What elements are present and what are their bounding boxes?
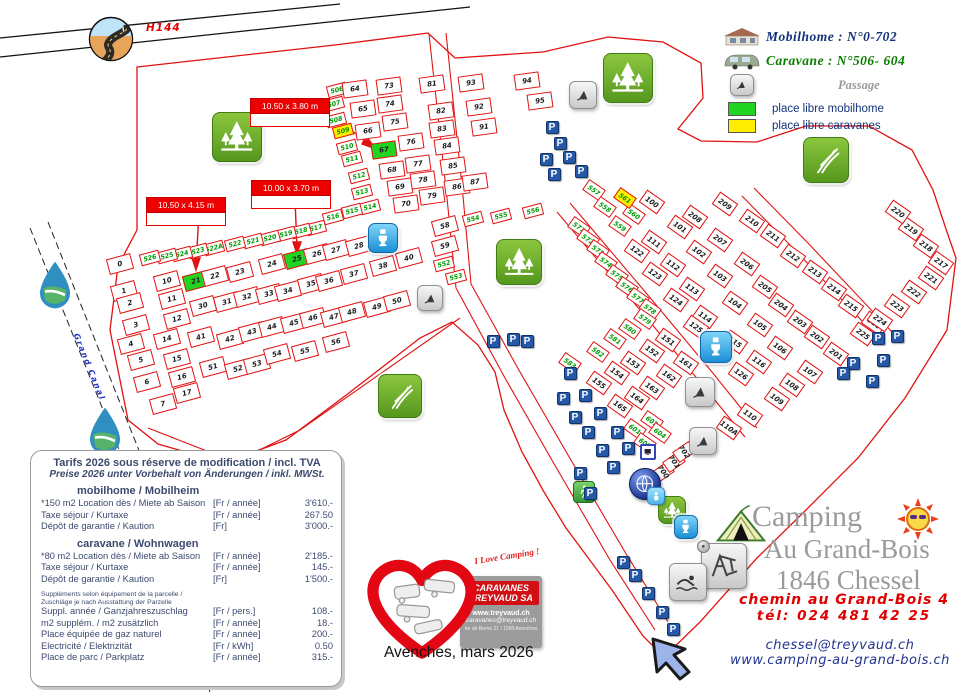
legend-mobilhome-label: Mobilhome : N°0-702 bbox=[766, 29, 897, 45]
parking-icon: P bbox=[521, 335, 534, 348]
tariff-section-header: mobilhome / Mobilheim bbox=[77, 485, 333, 497]
toilet-icon bbox=[674, 515, 698, 539]
tariff-row: Taxe séjour / Kurtaxe[Fr / année]145.- bbox=[41, 562, 333, 574]
h144-road-icon bbox=[88, 16, 134, 67]
forest-icon bbox=[496, 239, 542, 285]
dimension-label-1: 10.50 x 3.80 m bbox=[250, 98, 330, 127]
tariff-row: m2 supplém. / m2 zusätzlich[Fr / année]1… bbox=[41, 618, 333, 630]
site-title-line2: Au Grand-Bois bbox=[764, 534, 930, 565]
h144-label: H144 bbox=[146, 22, 181, 34]
parking-icon: P bbox=[594, 407, 607, 420]
parking-icon: P bbox=[575, 165, 588, 178]
dimension-label-2: 10.00 x 3.70 m bbox=[251, 180, 331, 209]
parking-icon: P bbox=[487, 335, 500, 348]
parking-icon: P bbox=[540, 153, 553, 166]
parking-icon: P bbox=[642, 587, 655, 600]
parking-icon: P bbox=[891, 330, 904, 343]
contact-address-block: chemin au Grand-Bois 4 tél: 024 481 42 2… bbox=[730, 592, 958, 624]
website-url: www.camping-au-grand-bois.ch bbox=[718, 653, 962, 668]
forest-icon bbox=[603, 53, 653, 103]
tariff-row: Dépôt de garantie / Kaution[Fr]1'500.- bbox=[41, 574, 333, 586]
wheat-field-icon bbox=[378, 374, 422, 418]
passage-icon bbox=[685, 377, 715, 407]
passage-icon bbox=[417, 285, 443, 311]
parking-icon: P bbox=[582, 426, 595, 439]
water-drop-icon bbox=[35, 260, 75, 310]
parking-icon: P bbox=[574, 467, 587, 480]
tariff-row: Electricité / Elektrizität[Fr / kWh]0.50 bbox=[41, 641, 333, 653]
parking-icon: P bbox=[629, 569, 642, 582]
date-note: Avenches, mars 2026 bbox=[384, 644, 534, 662]
parking-icon: P bbox=[622, 442, 635, 455]
campground-map-page: 0123456710111214151617212223242526272830… bbox=[0, 0, 962, 700]
legend-caravane-label: Caravane : N°506- 604 bbox=[766, 53, 905, 69]
wheat-field-icon bbox=[803, 137, 849, 183]
tariff-note: Zuschläge je nach Ausstattung der Parzel… bbox=[41, 599, 333, 607]
free-caravane-swatch bbox=[728, 119, 756, 133]
parking-icon: P bbox=[548, 168, 561, 181]
phone-number: tél: 024 481 42 25 bbox=[730, 608, 958, 624]
parking-icon: P bbox=[554, 137, 567, 150]
parking-icon: P bbox=[584, 487, 597, 500]
tariff-row: Taxe séjour / Kurtaxe[Fr / année]267.50 bbox=[41, 510, 333, 522]
parking-icon: P bbox=[877, 354, 890, 367]
tariff-row: *150 m2 Location dès / Miete ab Saison[F… bbox=[41, 498, 333, 510]
parking-icon: P bbox=[596, 444, 609, 457]
parking-icon: P bbox=[617, 556, 630, 569]
passage-icon bbox=[718, 74, 766, 96]
parking-icon: P bbox=[579, 389, 592, 402]
shower-icon bbox=[647, 487, 665, 505]
caravane-image bbox=[718, 51, 766, 71]
tariffs-table: mobilhome / Mobilheim*150 m2 Location dè… bbox=[41, 485, 333, 664]
swimming-icon bbox=[669, 563, 707, 601]
passage-icon bbox=[689, 427, 717, 455]
parking-icon: P bbox=[837, 367, 850, 380]
free-mobilhome-swatch bbox=[728, 102, 756, 116]
tariff-section-header: caravane / Wohnwagen bbox=[77, 538, 333, 550]
toilet-icon bbox=[368, 223, 398, 253]
parking-icon: P bbox=[656, 606, 669, 619]
mobilhome-image bbox=[718, 26, 766, 48]
round-service-icon bbox=[697, 540, 710, 553]
parking-icon: P bbox=[507, 333, 520, 346]
parking-icon: P bbox=[546, 121, 559, 134]
contact-web-block: chessel@treyvaud.ch www.camping-au-grand… bbox=[718, 638, 962, 668]
street-address: chemin au Grand-Bois 4 bbox=[730, 592, 958, 608]
passage-icon bbox=[569, 81, 597, 109]
legend-free-mobilhome-label: place libre mobilhome bbox=[772, 103, 884, 115]
legend-passage-label: Passage bbox=[838, 78, 880, 93]
tariffs-subtitle: Preise 2026 unter Vorbehalt von Änderung… bbox=[41, 469, 333, 480]
tariff-note: Suppléments selon équipement de la parce… bbox=[41, 591, 333, 599]
tv-icon bbox=[640, 444, 656, 460]
email-address: chessel@treyvaud.ch bbox=[718, 638, 962, 653]
tariffs-title: Tarifs 2026 sous réserve de modification… bbox=[41, 457, 333, 469]
site-title-line1: Camping bbox=[752, 500, 930, 534]
tariff-row: *80 m2 Location dès / Miete ab Saison[Fr… bbox=[41, 551, 333, 563]
parking-icon: P bbox=[569, 411, 582, 424]
site-title: Camping Au Grand-Bois 1846 Chessel bbox=[752, 500, 930, 596]
map-legend: Mobilhome : N°0-702 Caravane : N°506- 60… bbox=[718, 26, 954, 136]
parking-icon: P bbox=[563, 151, 576, 164]
parking-icon: P bbox=[557, 392, 570, 405]
entrance-arrow-icon bbox=[648, 632, 696, 689]
tariffs-panel: Tarifs 2026 sous réserve de modification… bbox=[30, 450, 342, 687]
tariff-row: Suppl. année / Ganzjahreszuschlag[Fr / p… bbox=[41, 606, 333, 618]
parking-icon: P bbox=[611, 426, 624, 439]
parking-icon: P bbox=[872, 332, 885, 345]
dimension-label-3: 10.50 x 4.15 m bbox=[146, 197, 226, 226]
parking-icon: P bbox=[564, 367, 577, 380]
water-drop-icon bbox=[85, 406, 125, 456]
legend-free-caravane-label: place libre caravanes bbox=[772, 120, 881, 132]
tariff-row: Place équipée de gaz naturel[Fr / année]… bbox=[41, 629, 333, 641]
tariff-row: Place de parc / Parkplatz[Fr / année]315… bbox=[41, 652, 333, 664]
parking-icon: P bbox=[866, 375, 879, 388]
tariff-row: Dépôt de garantie / Kaution[Fr]3'000.- bbox=[41, 521, 333, 533]
toilet-icon bbox=[700, 331, 732, 363]
parking-icon: P bbox=[607, 461, 620, 474]
